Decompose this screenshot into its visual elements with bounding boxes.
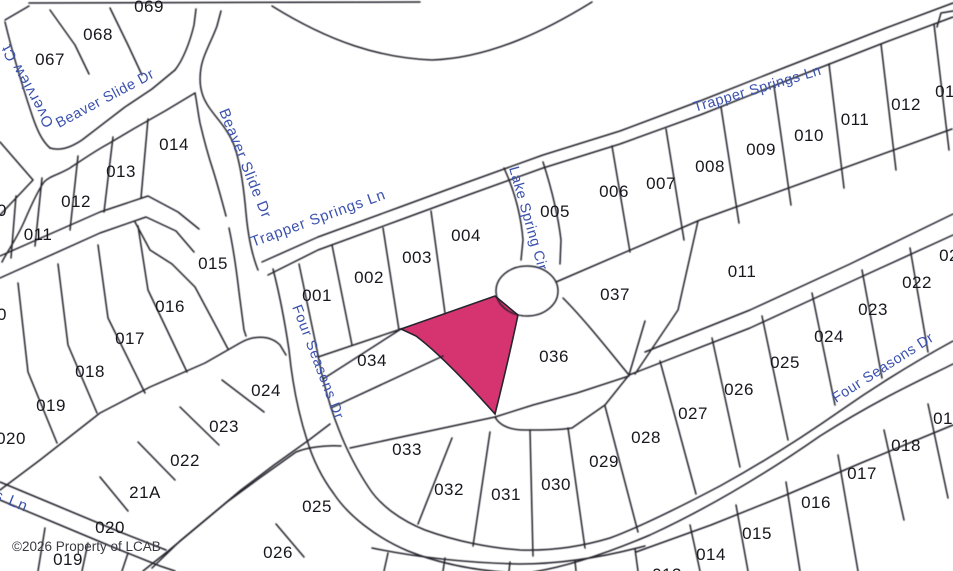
svg-text:037: 037 <box>600 285 630 304</box>
svg-text:006: 006 <box>599 182 629 201</box>
svg-text:016: 016 <box>801 493 831 512</box>
svg-text:003: 003 <box>402 248 432 267</box>
svg-text:004: 004 <box>451 226 481 245</box>
svg-text:018: 018 <box>75 362 105 381</box>
svg-text:001: 001 <box>302 286 332 305</box>
svg-text:023: 023 <box>209 417 239 436</box>
svg-text:020: 020 <box>0 429 26 448</box>
svg-text:011: 011 <box>841 110 870 129</box>
svg-text:029: 029 <box>589 452 619 471</box>
svg-text:032: 032 <box>434 480 464 499</box>
svg-text:©2026 Property of LCAB: ©2026 Property of LCAB <box>12 539 161 554</box>
svg-text:019: 019 <box>933 409 953 428</box>
svg-text:0: 0 <box>0 305 7 324</box>
svg-text:005: 005 <box>540 202 570 221</box>
svg-text:025: 025 <box>302 497 332 516</box>
svg-text:21A: 21A <box>129 483 161 502</box>
svg-text:012: 012 <box>61 192 91 211</box>
svg-text:013: 013 <box>106 162 136 181</box>
svg-text:033: 033 <box>392 440 422 459</box>
svg-text:027: 027 <box>678 404 708 423</box>
svg-text:022: 022 <box>902 273 932 292</box>
svg-text:026: 026 <box>263 543 293 562</box>
svg-text:007: 007 <box>646 174 676 193</box>
svg-text:068: 068 <box>83 25 113 44</box>
svg-text:010: 010 <box>794 126 824 145</box>
svg-text:023: 023 <box>858 300 888 319</box>
svg-text:015: 015 <box>742 524 772 543</box>
svg-text:024: 024 <box>251 381 281 400</box>
svg-text:019: 019 <box>36 396 66 415</box>
svg-text:016: 016 <box>155 297 185 316</box>
svg-text:024: 024 <box>814 327 844 346</box>
svg-text:008: 008 <box>695 157 725 176</box>
svg-text:017: 017 <box>115 329 145 348</box>
svg-text:013: 013 <box>652 565 682 571</box>
svg-text:009: 009 <box>746 140 776 159</box>
svg-text:025: 025 <box>770 353 800 372</box>
svg-text:014: 014 <box>159 135 189 154</box>
svg-text:030: 030 <box>541 475 571 494</box>
svg-text:011: 011 <box>24 225 53 244</box>
svg-text:021: 021 <box>939 246 953 265</box>
svg-text:014: 014 <box>696 545 726 564</box>
svg-text:0: 0 <box>0 201 7 220</box>
svg-text:022: 022 <box>170 451 200 470</box>
svg-text:069: 069 <box>134 0 164 16</box>
svg-text:028: 028 <box>631 428 661 447</box>
svg-text:067: 067 <box>35 50 65 69</box>
svg-text:013: 013 <box>935 82 953 101</box>
svg-text:011: 011 <box>728 262 757 281</box>
svg-text:012: 012 <box>891 95 921 114</box>
svg-text:017: 017 <box>847 464 877 483</box>
svg-text:018: 018 <box>891 436 921 455</box>
svg-text:034: 034 <box>357 351 387 370</box>
svg-text:031: 031 <box>491 485 521 504</box>
svg-text:036: 036 <box>539 347 569 366</box>
svg-text:020: 020 <box>95 518 125 537</box>
svg-text:002: 002 <box>354 268 384 287</box>
svg-text:026: 026 <box>724 380 754 399</box>
svg-text:015: 015 <box>198 254 228 273</box>
